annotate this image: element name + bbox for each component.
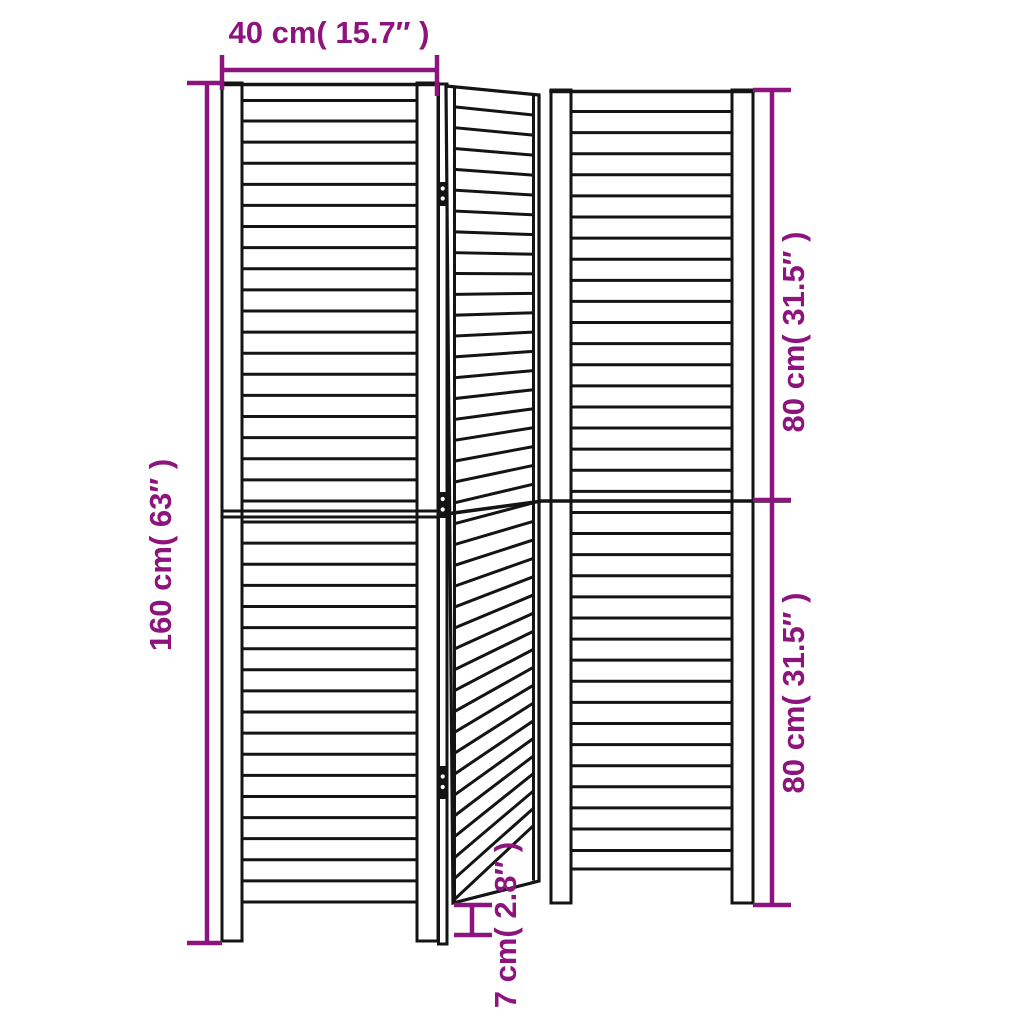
louver-slat [456, 253, 533, 255]
hinge-bottom [440, 766, 446, 799]
hinge-middle-knuckle [441, 497, 445, 501]
hinge-top-knuckle [441, 196, 445, 200]
dimension-label-foot-height: 7 cm( 2.8″ ) [488, 842, 523, 1008]
foot-height-dimension [454, 905, 492, 935]
louver-slat [456, 293, 533, 294]
dimension-label-panel-width: 40 cm( 15.7″ ) [229, 15, 430, 50]
hinge-middle-knuckle [441, 507, 445, 511]
hinge-middle [440, 492, 446, 518]
center-panel [439, 84, 540, 944]
right-panel-right-stile [732, 90, 753, 903]
dimension-label-upper-height: 80 cm( 31.5″ ) [776, 232, 811, 433]
hinge-top [440, 182, 446, 206]
right-panel-slats [571, 112, 732, 830]
hinge-bottom-knuckle [441, 785, 445, 789]
left-total-height-dimension [187, 83, 222, 943]
right-panel [540, 90, 789, 903]
hinge-top-knuckle [441, 186, 445, 190]
dimension-label-total-height: 160 cm( 63″ ) [143, 459, 178, 651]
dimension-label-lower-height: 80 cm( 31.5″ ) [776, 593, 811, 794]
top-width-dimension [222, 55, 437, 96]
right-panel-left-stile [551, 90, 571, 903]
left-panel [222, 83, 438, 941]
room-divider-dimension-diagram: 40 cm( 15.7″ ) 160 cm( 63″ ) 80 cm( 31.5… [0, 0, 1024, 1024]
divider-drawing [222, 83, 789, 944]
hinge-bottom-knuckle [441, 774, 445, 778]
